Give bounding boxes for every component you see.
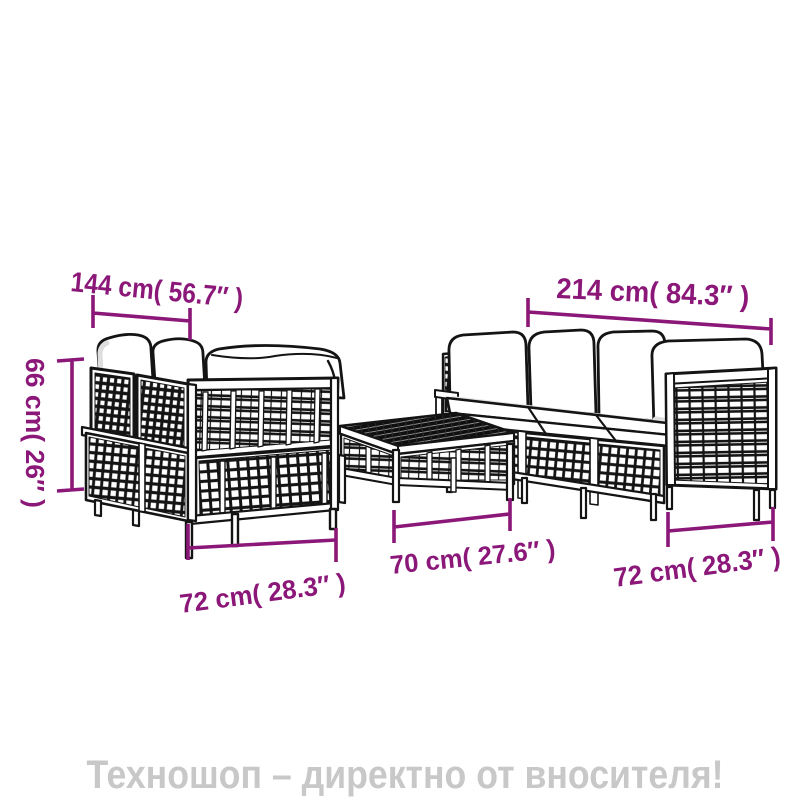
svg-text:66 cm( 26″ ): 66 cm( 26″ ) <box>20 358 48 508</box>
svg-text:Техношоп – директно от вносите: Техношоп – директно от вносителя! <box>87 753 724 797</box>
